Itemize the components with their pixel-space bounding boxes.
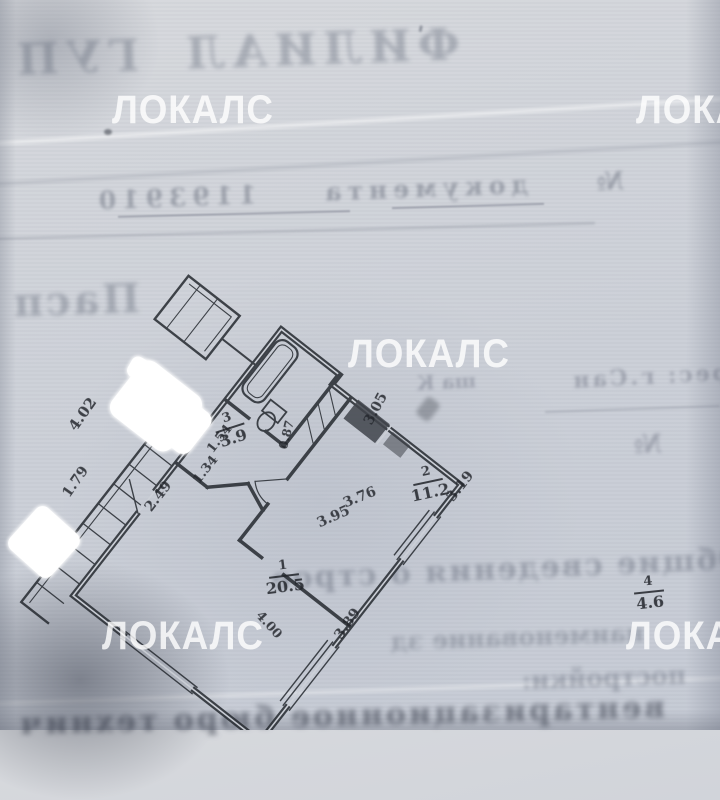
room-label-4: 4 4.6 (618, 567, 680, 617)
room-area: 20.5 (265, 575, 306, 599)
vent-shaft (383, 432, 410, 458)
room-label-1: 1 20.5 (250, 550, 319, 601)
watermark: ЛОКАЛС (636, 88, 720, 133)
watermark: ЛОКАЛС (102, 614, 264, 659)
watermark: ЛОКАЛС (626, 614, 720, 659)
watermark: ЛОКАЛС (348, 332, 510, 377)
photo-of-floor-plan-document: { "document": { "watermark": { "text": "… (0, 0, 720, 730)
watermark: ЛОКАЛС (112, 88, 274, 133)
room-area: 4.6 (635, 591, 665, 613)
